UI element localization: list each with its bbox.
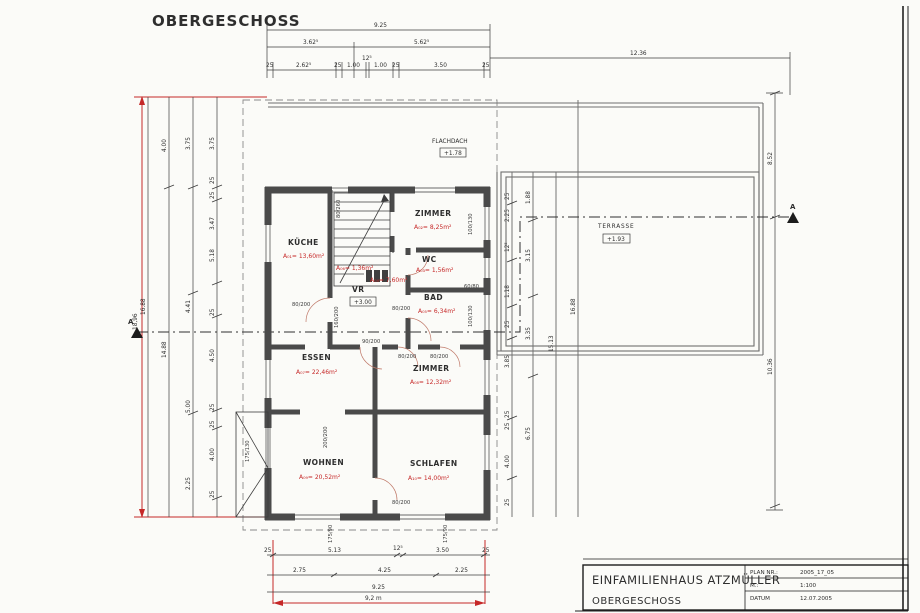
- dim-label: 4.41: [186, 300, 192, 313]
- dim-label: 12⁵: [504, 242, 511, 252]
- dimension-chain-right-inner: 25 2.25 12⁵ 1.18 25 3.85 25 25 4.00 25 1…: [504, 100, 578, 517]
- dim-label: 25: [334, 63, 342, 69]
- opening-label: 100/130: [468, 213, 474, 235]
- ground-floor-outline-dashed: [243, 100, 497, 530]
- opening-label: 160/200: [334, 306, 340, 328]
- dim-label: 3.75: [186, 137, 192, 150]
- dim-label: 2.25: [455, 568, 468, 574]
- dim-label: 5.18: [210, 249, 216, 262]
- dim-label: 3.50: [436, 548, 449, 554]
- page-edge-lines: [575, 6, 908, 611]
- opening-label: 80/200: [398, 354, 416, 360]
- opening-label: 80/200: [392, 306, 410, 312]
- opening-label: 175/90: [328, 525, 334, 543]
- dim-label: 16.88: [141, 298, 147, 315]
- dim-label: 12⁵: [362, 55, 372, 62]
- dim-label: 14.88: [162, 341, 168, 358]
- dim-label: 25: [392, 63, 400, 69]
- opening-label: 200/200: [323, 426, 329, 448]
- stairs: [334, 193, 390, 286]
- dim-label: 18,96: [133, 313, 139, 330]
- dim-label: 2.75: [293, 568, 306, 574]
- dim-label: 4.00: [505, 455, 511, 468]
- terrasse-level-label: +1.93: [607, 237, 625, 243]
- dim-label: 15.13: [549, 335, 555, 352]
- section-marker-label: A: [128, 318, 134, 326]
- dim-label: 10.36: [768, 358, 774, 375]
- dim-label: 25: [210, 403, 216, 411]
- section-marker-label: A: [790, 203, 796, 211]
- lower-roof-outline: [236, 412, 268, 517]
- dim-label: 2.25: [186, 477, 192, 490]
- dim-label: 1.00: [374, 63, 387, 69]
- flachdach-label: FLACHDACH: [432, 139, 468, 145]
- dim-label: 5.00: [186, 400, 192, 413]
- titleblock-label: DATUM: [750, 596, 770, 602]
- opening-label: 80/200: [292, 302, 310, 308]
- dim-label: 6.75: [526, 427, 532, 440]
- dimension-chain-far-right: 8.52 10.36: [766, 91, 783, 510]
- dim-label: 9.25: [372, 585, 385, 591]
- dim-label: 1.88: [526, 191, 532, 204]
- dim-label: 5.13: [328, 548, 341, 554]
- opening-label: 175/130: [245, 440, 251, 462]
- dim-label: 3.47: [210, 217, 216, 230]
- terrasse-label: TERRASSE: [597, 224, 634, 230]
- room-name: ESSEN: [302, 353, 331, 362]
- dim-label: 4.00: [162, 139, 168, 152]
- dim-label: 25: [266, 63, 274, 69]
- room-area: A₀₅= 6,34m²: [418, 308, 456, 315]
- dim-label: 25: [505, 422, 511, 430]
- room-level: +3.00: [354, 300, 372, 306]
- flachdach-level-label: +1.78: [444, 151, 462, 157]
- page-title: OBERGESCHOSS: [152, 12, 301, 30]
- room-name: ZIMMER: [415, 209, 451, 218]
- dim-label: 25: [482, 548, 490, 554]
- room-name: BAD: [424, 293, 443, 302]
- titleblock-label: M.:: [750, 583, 759, 589]
- dim-label: 4.25: [378, 568, 391, 574]
- dim-label: 25: [210, 191, 216, 199]
- room-name: SCHLAFEN: [410, 459, 458, 468]
- room-area: A₀₉= 20,52m²: [299, 474, 341, 481]
- dim-label: 25: [505, 410, 511, 418]
- dim-label: 25: [210, 308, 216, 316]
- dim-label: 12⁵: [393, 545, 403, 552]
- dim-label: 9.25: [374, 23, 387, 29]
- opening-label: 80/200: [430, 354, 448, 360]
- section-line: A A: [128, 203, 799, 338]
- opening-label: 90/200: [362, 339, 380, 345]
- dim-label: 3.75: [210, 137, 216, 150]
- room-name: VR: [352, 285, 364, 294]
- dim-label: 3.62⁵: [303, 39, 319, 46]
- dim-label: 2.62⁵: [296, 62, 312, 69]
- scanned-plan-page: OBERGESCHOSS 9.25 3.62⁵ 5.62⁵ 25 2.62⁵ 2…: [0, 0, 920, 613]
- dim-label: 12.36: [630, 51, 647, 57]
- room-name: ZIMMER: [413, 364, 449, 373]
- title-block: EINFAMILIENHAUS ATZMÜLLER OBERGESCHOSS P…: [583, 559, 908, 610]
- dim-label: 25: [210, 176, 216, 184]
- room-area: A₀₂= 8,25m²: [414, 224, 452, 231]
- floor-plan-drawing: OBERGESCHOSS 9.25 3.62⁵ 5.62⁵ 25 2.62⁵ 2…: [0, 0, 920, 613]
- titleblock-label: PLAN NR.:: [750, 570, 778, 576]
- titleblock-value: 1:100: [800, 583, 817, 589]
- dim-label: 25: [210, 490, 216, 498]
- room-name: KÜCHE: [288, 238, 319, 247]
- room-area: A₀₄= 7,60m²: [370, 277, 408, 284]
- opening-label: 175/90: [443, 525, 449, 543]
- dimension-chain-top: 9.25 3.62⁵ 5.62⁵ 25 2.62⁵ 25 1.00 12⁵ 1.…: [266, 23, 490, 78]
- sheet-title: OBERGESCHOSS: [592, 596, 681, 607]
- room-area: A₁₀= 14,00m²: [408, 475, 450, 482]
- dim-label: 25: [505, 498, 511, 506]
- opening-label: 100/130: [468, 305, 474, 327]
- dim-label: 5.62⁵: [414, 39, 430, 46]
- dim-label: 3.85: [505, 355, 511, 368]
- opening-label: 60/80: [464, 284, 479, 290]
- dim-label: 3.35: [526, 327, 532, 340]
- opening-label: 80/260: [336, 200, 342, 218]
- room-name: WOHNEN: [303, 458, 344, 467]
- dim-label: 9,2 m: [365, 596, 382, 602]
- dim-label: 1.00: [347, 63, 360, 69]
- room-area: A₀₃= 1,56m²: [416, 267, 454, 274]
- dim-label: 25: [264, 548, 272, 554]
- room-area: A₀₆= 1,36m²: [336, 265, 374, 272]
- dim-label: 16.88: [571, 298, 577, 315]
- room-area: A₀₇= 22,46m²: [296, 369, 338, 376]
- room-area: A₀₁= 13,60m²: [283, 253, 325, 260]
- dim-label: 3.15: [526, 249, 532, 262]
- room-area: A₀₈= 12,32m²: [410, 379, 452, 386]
- dim-label: 8.52: [768, 152, 774, 165]
- dimension-top-right: 12.36: [490, 51, 790, 95]
- dimension-chain-bottom: 25 5.13 12⁵ 3.50 25 2.75 4.25 2.25 9.25 …: [264, 540, 490, 606]
- dim-label: 4.00: [210, 448, 216, 461]
- room-name: WC: [422, 255, 437, 264]
- titleblock-value: 2005_17_05: [800, 570, 835, 576]
- dim-label: 25: [482, 63, 490, 69]
- dim-label: 4.50: [210, 349, 216, 362]
- dim-label: 3.50: [434, 63, 447, 69]
- titleblock-value: 12.07.2005: [800, 596, 832, 602]
- dim-label: 25: [210, 420, 216, 428]
- opening-label: 80/200: [392, 500, 410, 506]
